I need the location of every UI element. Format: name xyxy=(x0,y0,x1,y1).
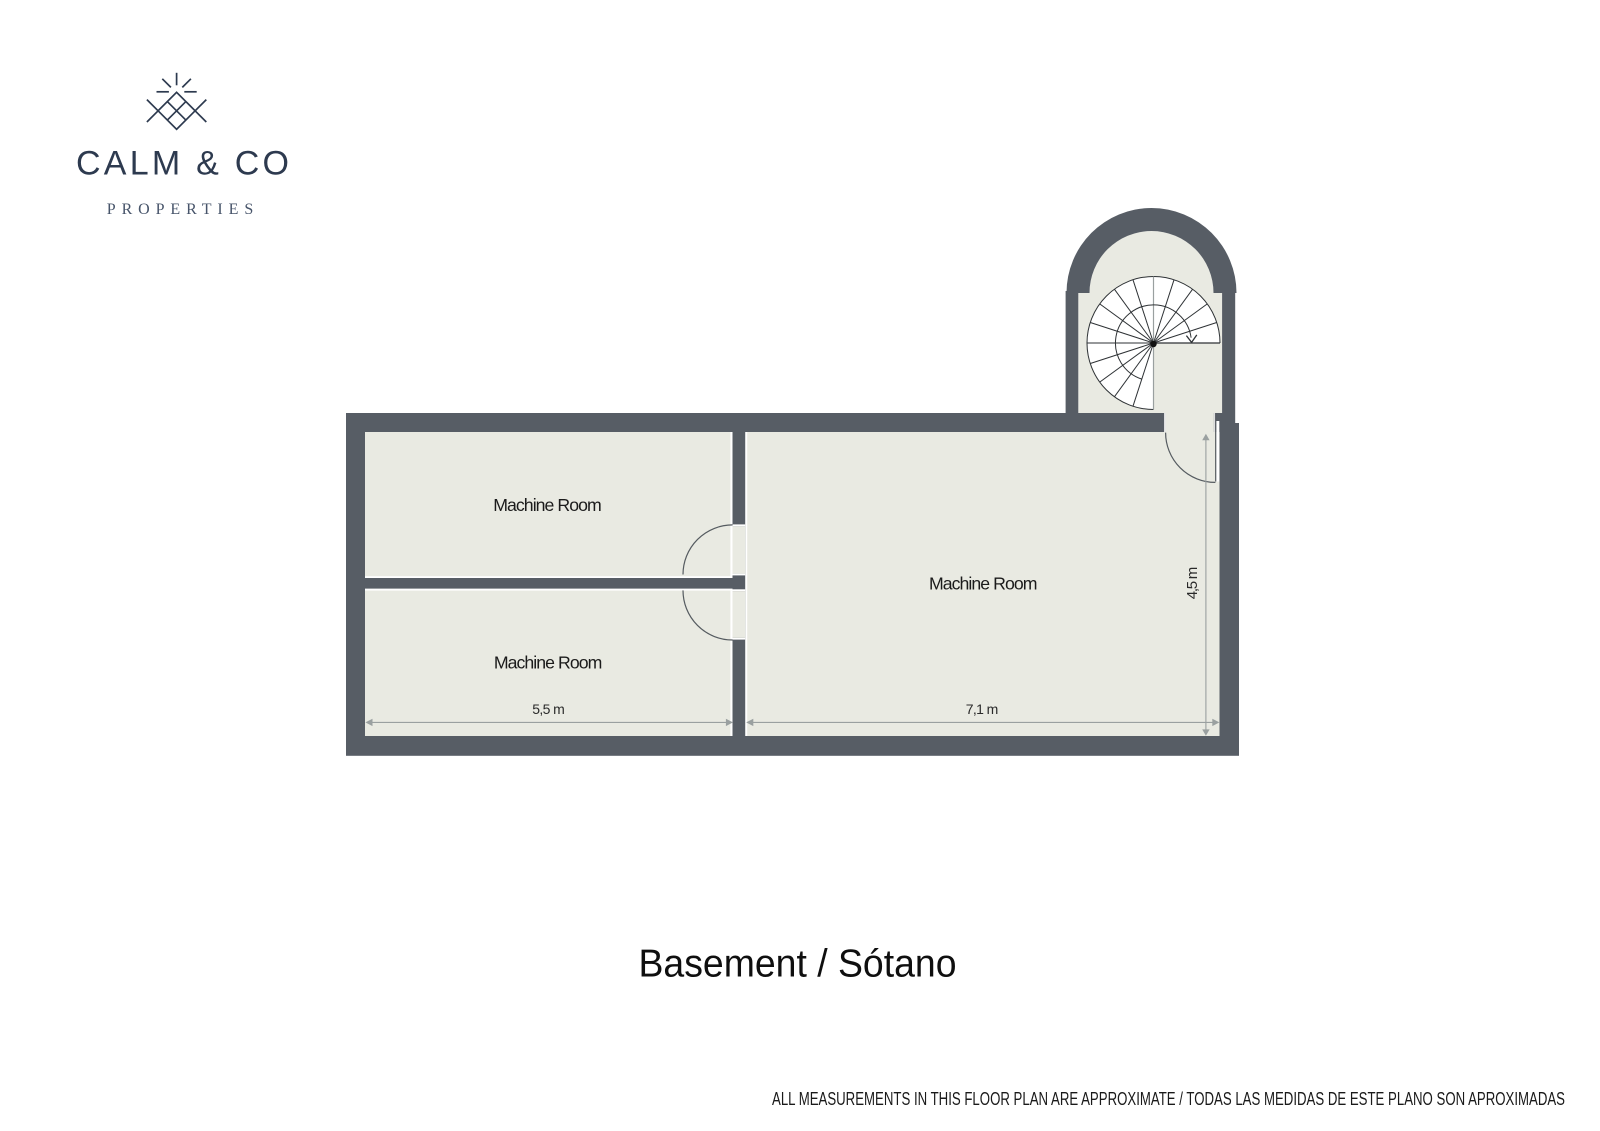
svg-text:Basement / Sótano: Basement / Sótano xyxy=(639,942,957,985)
svg-text:Machine Room: Machine Room xyxy=(929,573,1037,593)
svg-text:5,5 m: 5,5 m xyxy=(532,701,565,717)
svg-text:7,1 m: 7,1 m xyxy=(966,701,999,717)
svg-text:Machine Room: Machine Room xyxy=(494,653,603,673)
svg-text:4,5 m: 4,5 m xyxy=(1184,567,1201,600)
svg-text:Machine Room: Machine Room xyxy=(493,495,602,515)
svg-text:CALM & CO: CALM & CO xyxy=(76,145,289,183)
svg-text:PROPERTIES: PROPERTIES xyxy=(107,201,254,218)
svg-text:ALL MEASUREMENTS IN THIS FLOOR: ALL MEASUREMENTS IN THIS FLOOR PLAN ARE … xyxy=(772,1089,1565,1109)
